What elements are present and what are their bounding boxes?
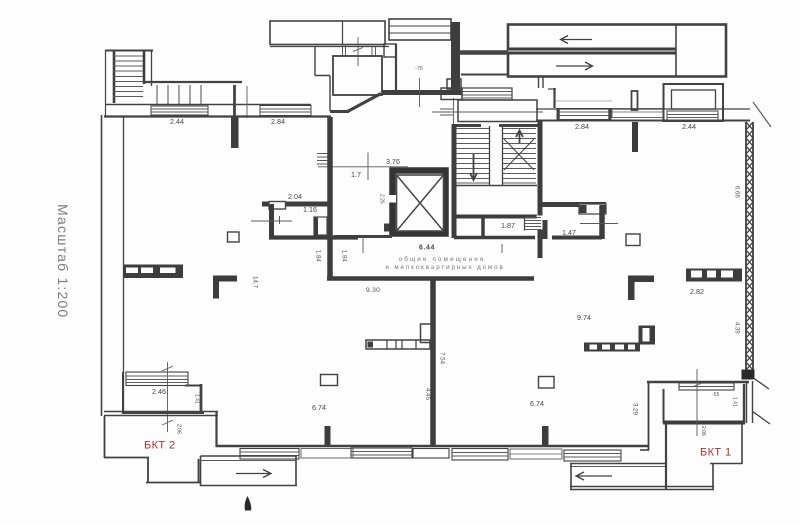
svg-text:2.06: 2.06 <box>700 426 706 436</box>
svg-text:Масштаб 1:200: Масштаб 1:200 <box>55 204 71 318</box>
svg-text:2.82: 2.82 <box>690 287 704 296</box>
svg-text:и мелкоквартирных домов: и мелкоквартирных домов <box>385 264 504 271</box>
svg-text:1.87: 1.87 <box>501 221 515 230</box>
svg-text:1.16: 1.16 <box>303 205 317 214</box>
svg-text:3.29: 3.29 <box>632 403 639 416</box>
svg-text:6.74: 6.74 <box>530 399 544 408</box>
svg-text:1.47: 1.47 <box>562 228 576 237</box>
svg-text:общие помещения: общие помещения <box>399 256 486 263</box>
svg-text:14.7: 14.7 <box>252 276 259 289</box>
svg-text:1.84: 1.84 <box>315 250 321 262</box>
svg-text:БКТ 2: БКТ 2 <box>144 440 176 452</box>
svg-text:2.06: 2.06 <box>176 424 182 434</box>
svg-text:9.74: 9.74 <box>577 313 591 322</box>
svg-text:4.45: 4.45 <box>424 388 431 401</box>
svg-text:7.54: 7.54 <box>439 352 446 365</box>
svg-text:1.41: 1.41 <box>194 394 200 404</box>
svg-text:2.26: 2.26 <box>379 194 385 204</box>
svg-text:3.76: 3.76 <box>386 157 400 166</box>
svg-text:6.74: 6.74 <box>312 403 326 412</box>
svg-text:2.84: 2.84 <box>271 117 285 126</box>
svg-text:2.44: 2.44 <box>170 117 184 126</box>
svg-text:9.30: 9.30 <box>366 287 380 294</box>
svg-text:БКТ 1: БКТ 1 <box>700 447 732 459</box>
svg-text:2.46: 2.46 <box>152 387 166 396</box>
svg-text:2.84: 2.84 <box>575 122 589 131</box>
svg-text:4.39: 4.39 <box>734 322 740 334</box>
svg-text:6.44: 6.44 <box>419 245 435 252</box>
svg-text:2.04: 2.04 <box>288 192 302 201</box>
svg-text:1.41: 1.41 <box>732 397 738 407</box>
svg-text:1.7: 1.7 <box>351 170 361 179</box>
svg-text:6.66: 6.66 <box>734 186 740 198</box>
svg-text:-55: -55 <box>712 392 719 398</box>
svg-text:-75: -75 <box>415 66 423 72</box>
svg-text:2.44: 2.44 <box>682 122 696 131</box>
svg-text:1.94: 1.94 <box>341 250 347 262</box>
